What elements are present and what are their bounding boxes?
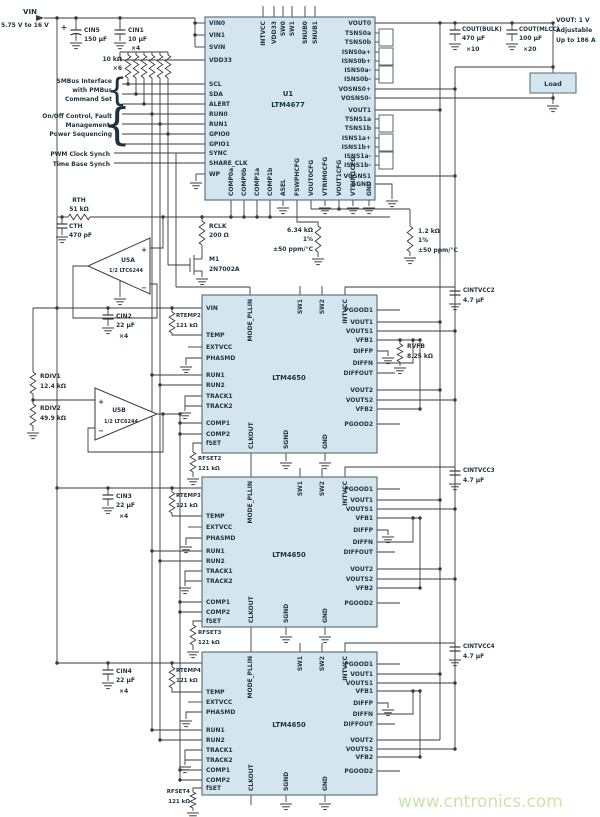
junction-dot <box>178 610 181 613</box>
annotation: RFSET3 <box>198 630 221 636</box>
resistor <box>190 625 196 645</box>
resistor <box>199 221 205 245</box>
annotation: RTH <box>72 197 85 204</box>
pin-label: VOUT2 <box>350 387 373 394</box>
junction-dot <box>158 738 161 741</box>
pin-label: EXTVCC <box>206 344 233 351</box>
wire <box>172 513 202 516</box>
pin-label: VDD33 <box>271 21 278 44</box>
wire <box>375 184 392 199</box>
junction-dot <box>453 507 456 510</box>
annotation: VIN <box>23 8 37 16</box>
annotation: CINTVCC4 <box>463 644 495 650</box>
pin-label: VIN1 <box>209 32 225 39</box>
annotation: 22 µF <box>116 322 135 329</box>
pin-label: SW1 <box>289 21 296 36</box>
annotation: 10 µF <box>128 36 147 43</box>
pin-label: TRACK2 <box>206 757 233 764</box>
wire <box>377 530 388 535</box>
resistor <box>157 55 163 78</box>
junction-dot <box>438 672 441 675</box>
annotation: with PMBus <box>72 87 112 94</box>
annotation: 100 µF <box>519 35 542 42</box>
pin-label: PHASMD <box>206 709 235 716</box>
pin-label: VOUTS1 <box>346 328 373 335</box>
pin-label: RUN2 <box>206 558 225 565</box>
junction-dot <box>398 338 401 341</box>
wire <box>345 467 455 477</box>
annotation: ±50 ppm/°C <box>273 246 313 253</box>
annotation: ×6 <box>113 65 122 72</box>
pin-label: EXTVCC <box>206 699 233 706</box>
pin-label: VDD33 <box>209 57 232 64</box>
pin-label: VFB1 <box>356 688 374 695</box>
junction-dot <box>438 108 441 111</box>
pin-label: DIFFP <box>353 348 373 355</box>
pin-label: DIFFP <box>353 700 373 707</box>
pin-label: DIFFOUT <box>344 549 374 556</box>
pin-label: ASEL <box>280 179 287 196</box>
annotation: 1% <box>303 236 313 243</box>
wire <box>172 688 202 692</box>
resistor <box>133 55 139 78</box>
annotation: 470 µF <box>462 35 485 42</box>
junction-dot <box>142 102 145 105</box>
annotation: Command Set <box>65 96 112 103</box>
junction-dot <box>150 549 153 552</box>
resistor <box>30 372 36 394</box>
junction-dot <box>268 215 271 218</box>
junction-dot <box>453 747 456 750</box>
junction-dot <box>453 681 456 684</box>
pin-label: VFB1 <box>356 515 374 522</box>
wire <box>193 788 202 792</box>
junction-dot <box>418 516 421 519</box>
annotation: Load <box>544 80 562 88</box>
junction-dot <box>438 320 441 323</box>
pin-label: TSNS1a <box>345 116 371 123</box>
junction-dot <box>551 21 554 24</box>
annotation: 10 kΩ <box>102 56 122 63</box>
pin-label: DIFFN <box>353 539 373 546</box>
resistor <box>407 226 413 252</box>
junction-dot <box>158 383 161 386</box>
pin-label: SGND <box>283 772 290 791</box>
opamp-label: U5A <box>121 257 135 264</box>
pin-label: INTVCC <box>260 20 267 45</box>
resistor <box>149 55 155 78</box>
junction-dot <box>200 215 203 218</box>
annotation: 1% <box>418 237 428 244</box>
junction-dot <box>453 398 456 401</box>
junction-dot <box>158 122 161 125</box>
pin-label: TSNS1b <box>345 125 372 132</box>
pin-label: TEMP <box>206 332 225 339</box>
pin-label: PGOOD2 <box>344 421 373 428</box>
opamp-plus-mark: + <box>98 398 104 406</box>
annotation: 22 µF <box>116 677 135 684</box>
pin-label: PHASMD <box>206 535 235 542</box>
junction-dot <box>178 768 181 771</box>
pin-label: TRACK2 <box>206 578 233 585</box>
pin-label: RUN1 <box>206 548 225 555</box>
junction-dot <box>170 661 173 664</box>
opamp-label: U5B <box>112 407 126 414</box>
junction-dot <box>438 388 441 391</box>
annotation: COUT(BULK) <box>462 27 502 33</box>
annotation: 470 pF <box>69 232 92 239</box>
junction-dot <box>229 215 232 218</box>
pin-label: VOUT1 <box>350 319 373 326</box>
pin-label: DIFFN <box>353 360 373 367</box>
pin-label: RUN2 <box>206 382 225 389</box>
junction-dot <box>55 306 58 309</box>
annotation: ×4 <box>119 688 128 695</box>
resistor <box>169 312 175 333</box>
pin-label: FSWPHCFG <box>294 158 301 196</box>
junction-dot <box>55 486 58 489</box>
resistor <box>30 404 36 426</box>
schematic-canvas: {{U1LTM4677VIN0VIN1SVINVDD33SCLSDAALERTR… <box>0 0 600 817</box>
annotation: 4.7 µF <box>463 297 484 304</box>
annotation: 121 kΩ <box>176 503 198 509</box>
pin-label: VOUT2 <box>350 737 373 744</box>
junction-dot <box>134 92 137 95</box>
annotation: RTEMP2 <box>176 313 201 319</box>
pin-label: COMP2 <box>206 609 230 616</box>
junction-dot <box>178 421 181 424</box>
resistor <box>141 55 147 78</box>
pin-label: VOSNS1 <box>344 173 371 180</box>
annotation: 4.7 µF <box>463 653 484 660</box>
pin-label: fSET <box>206 440 222 447</box>
annotation: RFSET2 <box>198 456 221 462</box>
annotation: RFSET4 <box>167 789 190 795</box>
annotation: On/Off Control, Fault <box>42 113 112 120</box>
annotation: 8.25 kΩ <box>407 353 433 360</box>
ic-title: LTM4650 <box>272 721 306 729</box>
junction-dot <box>55 661 58 664</box>
pin-label: fSET <box>206 618 222 625</box>
annotation: 4.7 µF <box>463 477 484 484</box>
junction-dot <box>106 661 109 664</box>
annotation: 121 kΩ <box>176 323 198 329</box>
pin-label: VOUT2 <box>350 566 373 573</box>
annotation: CIN3 <box>116 493 132 500</box>
annotation: 1.2 kΩ <box>418 228 440 235</box>
pin-label: TRACK1 <box>206 747 233 754</box>
annotation: RVFB <box>407 343 425 350</box>
pin-label: ISNS1b+ <box>342 144 371 151</box>
pin-label: DIFFP <box>353 527 373 534</box>
pin-label: EXTVCC <box>206 524 233 531</box>
annotation: CIN4 <box>116 668 132 675</box>
wire <box>185 396 202 406</box>
junction-dot <box>418 755 421 758</box>
annotation: CTH <box>69 223 83 230</box>
junction-dot <box>551 96 554 99</box>
pin-label: SYNC <box>209 150 228 157</box>
pin-label: COMP1a <box>254 168 261 196</box>
junction-dot <box>510 21 513 24</box>
pin-label: PHASMD <box>206 355 235 362</box>
wire <box>377 691 413 714</box>
pin-label: TEMP <box>206 513 225 520</box>
resistor <box>397 344 403 362</box>
pin-label: COMP2 <box>206 777 230 784</box>
junction-dot <box>106 306 109 309</box>
pin-label: TRACK1 <box>206 568 233 575</box>
pin-label: SNUB1 <box>312 21 319 44</box>
resistor <box>165 55 171 78</box>
pin-label: CLKOUT <box>248 421 255 449</box>
pin-label: VOSNS0- <box>341 95 371 102</box>
annotation: 49.9 kΩ <box>40 415 66 422</box>
opamp-minus-mark: − <box>141 284 147 292</box>
annotation: RTEMP4 <box>176 668 201 674</box>
resistor <box>190 792 196 808</box>
pin-label: SW0 <box>280 21 287 36</box>
junction-dot <box>255 215 258 218</box>
junction-dot <box>411 516 414 519</box>
pin-label: VOSNS0+ <box>338 86 371 93</box>
junction-dot <box>178 432 181 435</box>
annotation: Up to 186 A <box>556 37 596 44</box>
annotation: RCLK <box>209 223 227 230</box>
junction-dot <box>453 577 456 580</box>
junction-dot <box>453 174 456 177</box>
opamp-U5B <box>95 388 157 440</box>
pin-label: INTVCC <box>342 655 349 680</box>
annotation: CIN2 <box>116 313 132 320</box>
wire <box>297 200 318 226</box>
pin-label: DIFFOUT <box>344 721 374 728</box>
pin-label: VOUT0 <box>348 20 371 27</box>
pin-label: SCL <box>209 81 222 88</box>
resistor <box>169 492 175 513</box>
pin-label: VFB2 <box>356 585 374 592</box>
pin-label: CLKOUT <box>248 595 255 623</box>
annotation: SMBus Interface <box>57 78 112 85</box>
junction-dot <box>150 373 153 376</box>
ic-title: LTM4650 <box>272 551 306 559</box>
pin-label: DIFFN <box>353 711 373 718</box>
pin-label: VOUTS1 <box>346 680 373 687</box>
pin-label: SVIN <box>209 44 225 51</box>
annotation: RTEMP3 <box>176 493 201 499</box>
junction-dot <box>74 16 77 19</box>
junction-dot <box>106 486 109 489</box>
pin-stub-box <box>379 115 393 132</box>
pin-label: TEMP <box>206 689 225 696</box>
pin-stub-box <box>379 152 393 169</box>
ic-title: LTM4650 <box>272 374 306 382</box>
pin-label: TRACK2 <box>206 403 233 410</box>
wire <box>345 643 455 652</box>
pin-stub-box <box>379 29 393 46</box>
pin-label: SGND <box>283 604 290 623</box>
opamp-plus-mark: + <box>141 246 147 254</box>
annotation: 121 kΩ <box>168 799 190 805</box>
junction-dot <box>337 207 340 210</box>
junction-dot <box>193 33 196 36</box>
pin-label: MODE_PLLIN <box>247 299 254 341</box>
annotation: ×4 <box>119 513 128 520</box>
resistor <box>190 452 196 472</box>
junction-dot <box>418 689 421 692</box>
ic-title: U1 <box>283 90 294 98</box>
annotation: CINTVCC2 <box>463 288 495 294</box>
pin-label: RUN0 <box>209 111 228 118</box>
annotation: CINTVCC3 <box>463 468 495 474</box>
pin-label: GPIO1 <box>209 141 230 148</box>
pin-label: VTRIM1CFG <box>350 157 357 196</box>
pin-label: VOUT1 <box>348 107 371 114</box>
junction-dot <box>161 412 164 415</box>
annotation: ×4 <box>119 333 128 340</box>
pin-label: SNUB0 <box>302 21 309 44</box>
pin-label: CLKOUT <box>248 763 255 791</box>
resistor <box>169 667 175 688</box>
annotation: 200 Ω <box>209 232 229 239</box>
pin-label: ISNS1b- <box>344 162 371 169</box>
junction-dot <box>150 728 153 731</box>
wire <box>185 571 202 581</box>
pin-label: VOUTS1 <box>346 506 373 513</box>
pin-label: MODE_PLLIN <box>247 481 254 523</box>
circuit-schematic: {{U1LTM4677VIN0VIN1SVINVDD33SCLSDAALERTR… <box>0 0 600 817</box>
pin-label: SHARE_CLK <box>209 160 248 167</box>
annotation: COUT(MLCC) <box>519 27 560 33</box>
wire <box>345 287 455 295</box>
pin-label: VFB2 <box>356 754 374 761</box>
annotation: 12.4 kΩ <box>40 383 66 390</box>
annotation: Management, <box>66 122 112 129</box>
pin-label: COMP0b <box>241 167 248 196</box>
resistor <box>68 214 90 220</box>
pin-label: SDA <box>209 91 223 98</box>
pin-label: COMP1 <box>206 420 230 427</box>
pin-label: WP <box>209 171 221 178</box>
junction-dot <box>193 21 196 24</box>
junction-dot <box>418 586 421 589</box>
pin-label: ISNS0b- <box>344 76 371 83</box>
annotation: + <box>61 23 68 32</box>
pin-label: VOUT1 <box>350 671 373 678</box>
annotation: ×20 <box>523 46 536 53</box>
wire <box>186 358 202 365</box>
pin-label: MODE_PLLIN <box>247 656 254 698</box>
pin-label: VIN <box>206 305 218 312</box>
pin-label: GND <box>322 434 329 449</box>
pin-label: GND <box>322 608 329 623</box>
junction-dot <box>158 559 161 562</box>
junction-dot <box>453 87 456 90</box>
annotation: ±50 ppm/°C <box>418 247 458 254</box>
opamp-label: 1/2 LTC6244 <box>109 268 143 274</box>
junction-dot <box>551 65 554 68</box>
wire <box>193 443 202 452</box>
pin-label: COMP0a <box>228 168 235 196</box>
pin-label: VOUTS2 <box>346 397 373 404</box>
pin-label: COMP1 <box>206 599 230 606</box>
ic-title: LTM4677 <box>271 101 305 109</box>
pin-label: RUN1 <box>206 372 225 379</box>
pin-label: VTRIM0CFG <box>322 157 329 196</box>
annotation: 150 µF <box>84 36 107 43</box>
pin-label: ISNS1a- <box>344 153 371 160</box>
pin-label: COMP2 <box>206 431 230 438</box>
junction-dot <box>438 567 441 570</box>
opamp-minus-mark: − <box>98 427 104 435</box>
junction-dot <box>60 215 63 218</box>
annotation: 121 kΩ <box>198 640 220 646</box>
pin-label: GND <box>366 181 373 196</box>
annotation: 121 kΩ <box>176 678 198 684</box>
pin-label: COMP1 <box>206 767 230 774</box>
pin-label: INTVCC <box>342 298 349 323</box>
pin-label: PGOOD2 <box>344 600 373 607</box>
annotation: 6.34 kΩ <box>287 227 313 234</box>
junction-dot <box>161 215 164 218</box>
wire <box>186 712 202 719</box>
annotation: 2N7002A <box>209 266 240 273</box>
pin-label: VOUTS2 <box>346 746 373 753</box>
annotation: VOUT: 1 V <box>556 17 590 24</box>
pin-label: SW1 <box>297 299 304 314</box>
opamp-label: 1/2 LTC6244 <box>104 419 138 425</box>
pin-label: RUN1 <box>206 727 225 734</box>
watermark: www.cntronics.com <box>398 792 563 812</box>
pin-label: ISNS0a+ <box>342 49 371 56</box>
junction-dot <box>438 21 441 24</box>
pin-label: ISNS0a- <box>344 67 371 74</box>
pin-label: COMP1b <box>267 167 274 196</box>
junction-dot <box>411 338 414 341</box>
pin-label: VOUT1CFG <box>336 160 343 196</box>
wire <box>186 538 202 545</box>
pin-label: TSNS0b <box>345 39 372 46</box>
annotation: Adjustable <box>556 27 592 34</box>
annotation: ×10 <box>466 46 479 53</box>
wire <box>172 333 202 335</box>
annotation: PWM Clock Synch <box>50 151 110 158</box>
pin-label: GPIO0 <box>209 131 230 138</box>
pin-stub-box <box>379 134 393 151</box>
pin-label: ISNS0b+ <box>342 58 371 65</box>
pin-label: GND <box>322 776 329 791</box>
junction-dot <box>242 215 245 218</box>
pin-label: INTVCC <box>342 480 349 505</box>
junction-dot <box>118 16 121 19</box>
pin-label: ISNS1a+ <box>342 135 371 142</box>
pin-label: RUN2 <box>206 737 225 744</box>
annotation: 5.75 V to 16 V <box>1 22 49 29</box>
pin-label: fSET <box>206 785 222 792</box>
pin-label: VFB2 <box>356 406 374 413</box>
pin-label: SW1 <box>297 481 304 496</box>
annotation: Time Base Synch <box>53 161 110 168</box>
annotation: Power Sequencing <box>49 131 112 138</box>
wire <box>377 703 388 708</box>
annotation: 51 kΩ <box>69 206 89 213</box>
junction-dot <box>178 600 181 603</box>
pin-label: VOUT1 <box>350 497 373 504</box>
annotation: RDIV2 <box>40 405 61 412</box>
junction-dot <box>31 398 34 401</box>
pin-label: SGND <box>283 430 290 449</box>
pin-label: PGOOD2 <box>344 768 373 775</box>
